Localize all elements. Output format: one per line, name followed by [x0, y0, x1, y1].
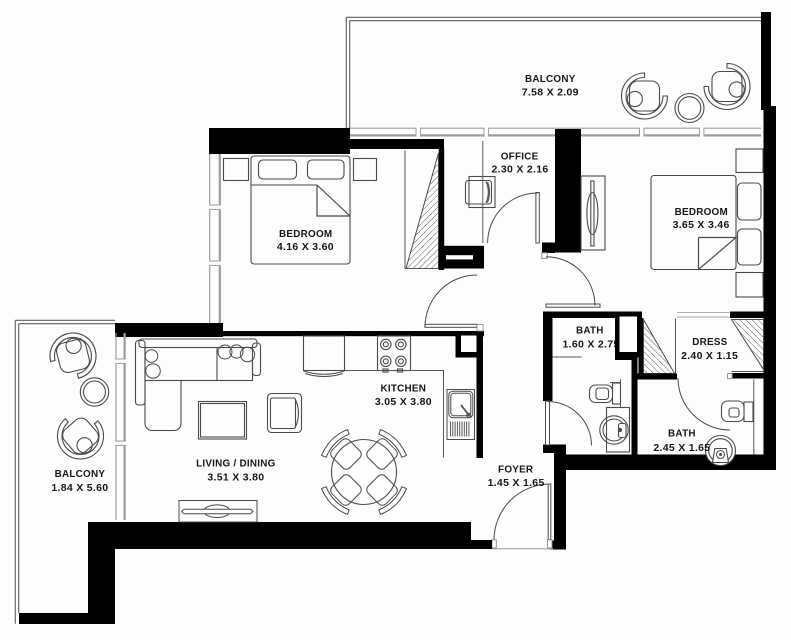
svg-text:BEDROOM: BEDROOM [279, 229, 332, 240]
svg-text:3.05 X 3.80: 3.05 X 3.80 [375, 396, 432, 408]
svg-text:3.51 X 3.80: 3.51 X 3.80 [207, 471, 264, 483]
svg-text:BALCONY: BALCONY [55, 469, 106, 480]
svg-text:3.65 X 3.46: 3.65 X 3.46 [673, 219, 730, 231]
svg-text:2.40 X 1.15: 2.40 X 1.15 [681, 350, 738, 362]
svg-text:1.60 X 2.75: 1.60 X 2.75 [562, 338, 619, 350]
svg-text:4.16 X 3.60: 4.16 X 3.60 [277, 241, 334, 253]
svg-text:FOYER: FOYER [498, 464, 533, 475]
svg-text:BEDROOM: BEDROOM [675, 207, 728, 218]
svg-text:LIVING / DINING: LIVING / DINING [196, 459, 276, 470]
svg-text:BATH: BATH [576, 326, 604, 337]
svg-text:1.45 X 1.65: 1.45 X 1.65 [488, 477, 545, 489]
svg-text:7.58 X 2.09: 7.58 X 2.09 [522, 87, 579, 99]
svg-text:2.30 X 2.16: 2.30 X 2.16 [491, 163, 548, 175]
svg-text:DRESS: DRESS [692, 337, 727, 348]
svg-text:2.45 X 1.65: 2.45 X 1.65 [653, 442, 710, 454]
svg-text:BALCONY: BALCONY [525, 74, 576, 85]
svg-text:1.84 X 5.60: 1.84 X 5.60 [51, 482, 108, 494]
svg-text:OFFICE: OFFICE [501, 152, 539, 163]
svg-text:BATH: BATH [668, 428, 696, 439]
svg-text:KITCHEN: KITCHEN [380, 383, 426, 394]
